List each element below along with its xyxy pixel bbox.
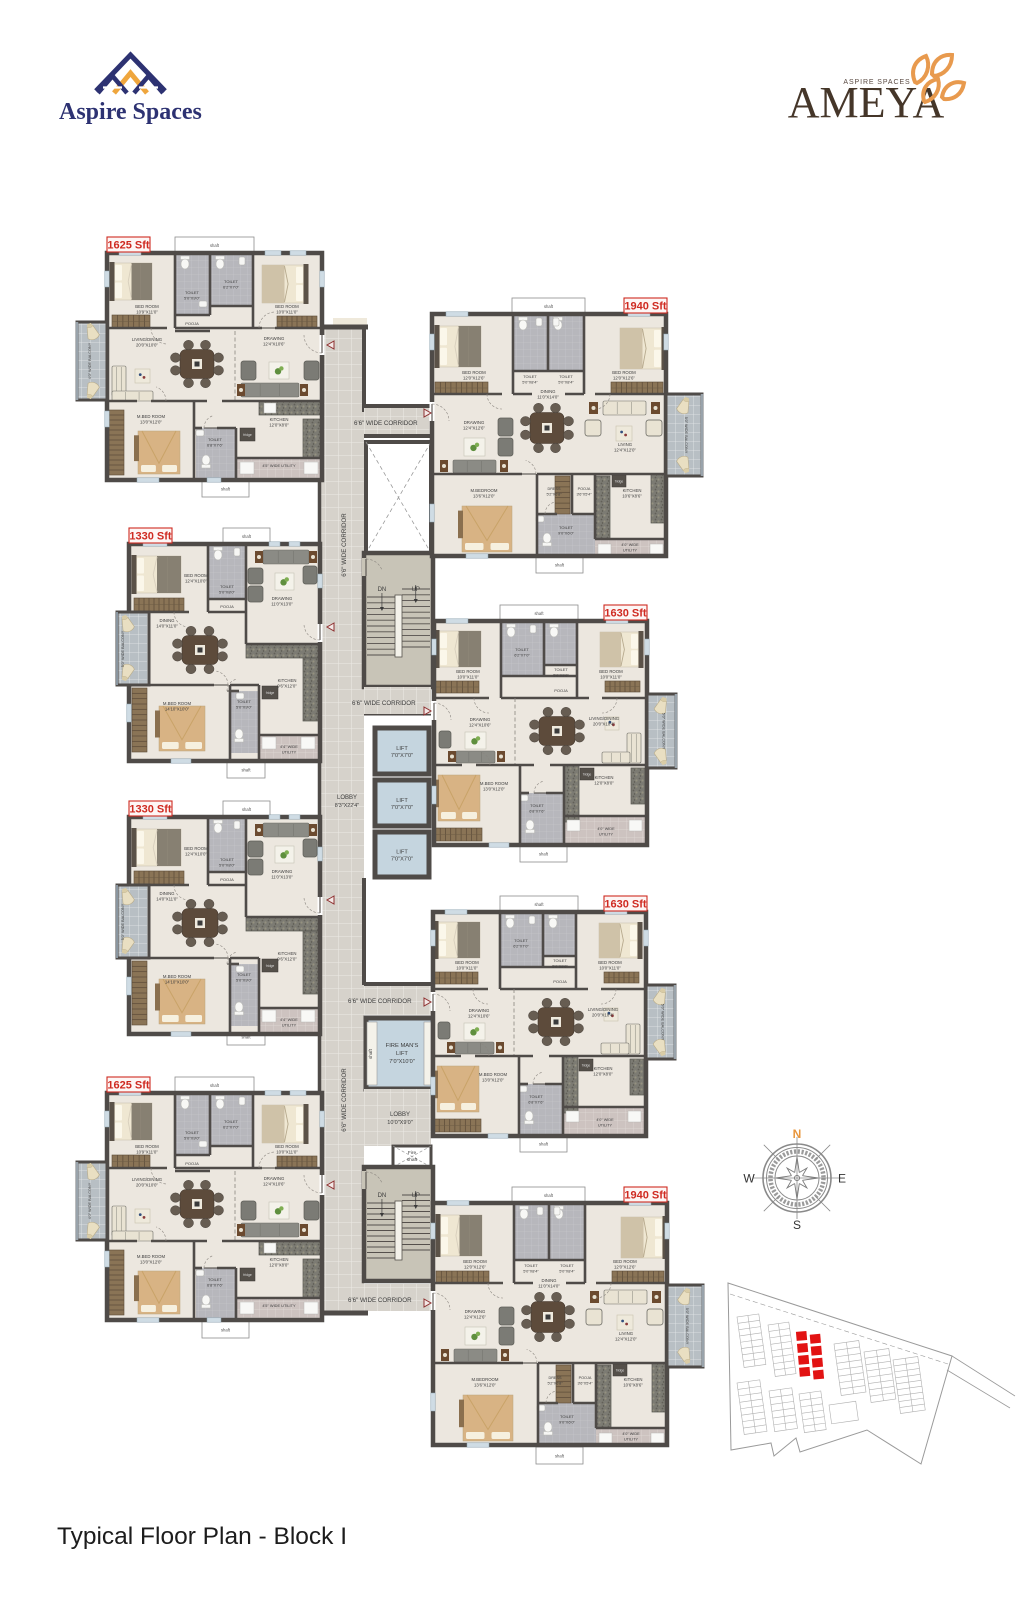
svg-text:BED ROOM: BED ROOM (135, 1144, 159, 1149)
svg-text:1630 Sft: 1630 Sft (604, 608, 647, 620)
svg-text:BED ROOM: BED ROOM (598, 960, 622, 965)
svg-text:LIFT: LIFT (396, 798, 408, 804)
svg-text:E: E (838, 1172, 846, 1186)
svg-text:TOILET: TOILET (220, 584, 234, 589)
svg-text:13'6"X12'0": 13'6"X12'0" (474, 1383, 496, 1388)
svg-text:KITCHEN: KITCHEN (270, 417, 289, 422)
svg-text:6'8"X7'6": 6'8"X7'6" (528, 1100, 544, 1105)
svg-text:1625 Sft: 1625 Sft (107, 240, 150, 252)
svg-text:DRAWING: DRAWING (469, 1008, 490, 1013)
svg-text:AMEYA: AMEYA (788, 78, 945, 127)
svg-text:UTILITY: UTILITY (282, 1023, 297, 1028)
svg-text:BED ROOM: BED ROOM (462, 370, 486, 375)
svg-text:M.BED ROOM: M.BED ROOM (137, 414, 166, 419)
svg-text:5'2"X6'8": 5'2"X6'8" (547, 1382, 563, 1386)
svg-text:1330 Sft: 1330 Sft (129, 531, 172, 543)
svg-text:10'6"X8'6": 10'6"X8'6" (622, 494, 642, 499)
svg-text:12'4"X10'6": 12'4"X10'6" (263, 342, 285, 347)
svg-text:20'0"X10'0": 20'0"X10'0" (136, 343, 158, 348)
svg-text:12'4"X10'6": 12'4"X10'6" (263, 1182, 285, 1187)
svg-text:TOILET: TOILET (224, 1119, 238, 1124)
svg-text:BED ROOM: BED ROOM (456, 669, 480, 674)
svg-text:5'0" WIDE BALCONY: 5'0" WIDE BALCONY (662, 713, 666, 750)
svg-text:5'0"X8'4": 5'0"X8'4" (523, 1269, 539, 1274)
svg-text:KITCHEN: KITCHEN (278, 678, 297, 683)
svg-text:LOBBY: LOBBY (390, 1112, 410, 1118)
svg-text:M.BED ROOM: M.BED ROOM (480, 781, 509, 786)
svg-text:TOILET: TOILET (237, 972, 251, 977)
svg-text:shaft: shaft (539, 851, 549, 856)
svg-text:9'6"X12'0": 9'6"X12'0" (277, 684, 297, 689)
svg-text:UTILITY: UTILITY (624, 1438, 639, 1442)
svg-text:13'0"X12'0": 13'0"X12'0" (482, 1078, 504, 1083)
svg-text:TOILET: TOILET (237, 699, 251, 704)
svg-text:6'6" WIDE CORRIDOR: 6'6" WIDE CORRIDOR (354, 420, 418, 427)
svg-text:LIVING: LIVING (619, 1331, 634, 1336)
svg-text:6'2"X7'0": 6'2"X7'0" (513, 944, 529, 949)
svg-text:1630 Sft: 1630 Sft (604, 899, 647, 911)
svg-text:shaft: shaft (555, 562, 565, 567)
svg-text:5'0"X9'0": 5'0"X9'0" (236, 978, 253, 983)
svg-text:UTILITY: UTILITY (282, 750, 297, 755)
svg-text:5'0"X9'0": 5'0"X9'0" (184, 296, 201, 301)
svg-text:8'3"X22'4": 8'3"X22'4" (335, 803, 360, 809)
svg-text:5'0"X8'0": 5'0"X8'0" (219, 590, 236, 595)
svg-text:LIFT: LIFT (396, 1051, 408, 1057)
svg-text:M.BED ROOM: M.BED ROOM (163, 701, 192, 706)
svg-text:LOBBY: LOBBY (337, 795, 357, 801)
svg-text:14'10"X10'0": 14'10"X10'0" (165, 980, 190, 985)
svg-text:BED ROOM: BED ROOM (275, 304, 299, 309)
svg-text:TOILET: TOILET (530, 803, 544, 808)
svg-text:DRAWING: DRAWING (464, 420, 485, 425)
svg-text:TOILET: TOILET (523, 374, 537, 379)
svg-text:POOJA: POOJA (579, 1376, 592, 1380)
svg-text:10'0"X11'0": 10'0"X11'0" (456, 966, 478, 971)
svg-text:1330 Sft: 1330 Sft (129, 804, 172, 816)
svg-text:shaft: shaft (368, 1048, 373, 1059)
svg-text:fridge: fridge (615, 480, 624, 484)
svg-text:BED ROOM: BED ROOM (599, 669, 623, 674)
svg-text:4'5" WIDE UTILITY: 4'5" WIDE UTILITY (262, 463, 296, 468)
svg-text:BED ROOM: BED ROOM (135, 304, 159, 309)
svg-text:4'0" WIDE: 4'0" WIDE (621, 543, 639, 547)
svg-text:DINING: DINING (159, 891, 175, 896)
svg-text:7'0"X7'0": 7'0"X7'0" (391, 805, 413, 811)
svg-text:shaft: shaft (241, 767, 251, 772)
svg-text:fridge: fridge (243, 1273, 252, 1277)
svg-text:13'6"X12'0": 13'6"X12'0" (473, 494, 495, 499)
svg-text:TOILET: TOILET (560, 1263, 574, 1268)
svg-text:POOJA: POOJA (578, 487, 591, 491)
svg-text:12'4"X10'6": 12'4"X10'6" (469, 723, 491, 728)
svg-text:BED ROOM: BED ROOM (184, 573, 208, 578)
svg-text:BED ROOM: BED ROOM (455, 960, 479, 965)
svg-text:shaft: shaft (407, 1157, 418, 1163)
svg-text:5'0"X9'0": 5'0"X9'0" (553, 673, 569, 678)
svg-text:12'0"X12'6": 12'0"X12'6" (614, 1265, 636, 1270)
svg-text:KITCHEN: KITCHEN (623, 488, 642, 493)
svg-text:POOJA: POOJA (554, 688, 568, 693)
svg-text:14'0"X11'0": 14'0"X11'0" (156, 897, 178, 902)
svg-text:UTILITY: UTILITY (599, 833, 614, 837)
svg-text:TOILET: TOILET (554, 667, 568, 672)
svg-text:shaft: shaft (539, 1141, 549, 1146)
svg-text:TOILET: TOILET (559, 525, 573, 530)
svg-text:4'4" WIDE: 4'4" WIDE (280, 744, 298, 749)
svg-text:DRESS: DRESS (548, 1376, 562, 1380)
svg-text:20'0"X10'4": 20'0"X10'4" (592, 1013, 614, 1018)
svg-text:POOJA: POOJA (553, 979, 567, 984)
svg-text:fridge: fridge (582, 1064, 591, 1068)
svg-text:3'6"X5'4": 3'6"X5'4" (577, 1382, 593, 1386)
svg-text:4'0" WIDE BALCONY: 4'0" WIDE BALCONY (88, 342, 92, 379)
svg-text:5'0"X9'0": 5'0"X9'0" (184, 1136, 201, 1141)
svg-text:5'0" WIDE BALCONY: 5'0" WIDE BALCONY (661, 1004, 665, 1041)
svg-text:12'0"X12'6": 12'0"X12'6" (613, 376, 635, 381)
svg-text:W: W (743, 1172, 755, 1186)
svg-text:DINING: DINING (540, 389, 556, 394)
svg-text:shaft: shaft (221, 1327, 231, 1332)
svg-text:6'6" WIDE CORRIDOR: 6'6" WIDE CORRIDOR (348, 998, 412, 1005)
svg-text:12'4"X12'0": 12'4"X12'0" (614, 448, 636, 453)
svg-text:4'0" WIDE: 4'0" WIDE (622, 1432, 640, 1436)
svg-text:LIFT: LIFT (396, 746, 408, 752)
svg-text:6'2"X7'0": 6'2"X7'0" (223, 285, 240, 290)
svg-text:6'6" WIDE CORRIDOR: 6'6" WIDE CORRIDOR (352, 700, 416, 707)
svg-text:DRAWING: DRAWING (264, 1176, 285, 1181)
svg-text:TOILET: TOILET (515, 647, 529, 652)
svg-text:9'6"X12'0": 9'6"X12'0" (277, 957, 297, 962)
svg-text:10'0"X11'0": 10'0"X11'0" (276, 310, 298, 315)
svg-text:TOILET: TOILET (529, 1094, 543, 1099)
svg-text:LIVING/DINING: LIVING/DINING (588, 1007, 619, 1012)
svg-text:12'4"X12'6": 12'4"X12'6" (463, 426, 485, 431)
svg-text:KITCHEN: KITCHEN (278, 951, 297, 956)
svg-text:LIFT: LIFT (396, 850, 408, 856)
svg-text:KITCHEN: KITCHEN (624, 1377, 643, 1382)
svg-text:LIVING/DINING: LIVING/DINING (589, 716, 620, 721)
svg-text:5'2"X6'8": 5'2"X6'8" (546, 493, 562, 497)
svg-text:shaft: shaft (544, 304, 554, 309)
svg-text:20'0"X10'4": 20'0"X10'4" (593, 722, 615, 727)
svg-text:TOILET: TOILET (224, 279, 238, 284)
svg-text:DRAWING: DRAWING (264, 336, 285, 341)
svg-text:LIVING/DINING: LIVING/DINING (132, 337, 163, 342)
svg-text:M.BED ROOM: M.BED ROOM (137, 1254, 166, 1259)
svg-text:9'0"X6'0": 9'0"X6'0" (558, 531, 575, 536)
svg-text:TOILET: TOILET (524, 1263, 538, 1268)
svg-text:Fire: Fire (408, 1150, 417, 1156)
svg-text:1940 Sft: 1940 Sft (624, 1190, 667, 1202)
svg-text:shaft: shaft (555, 1453, 565, 1458)
svg-text:FIRE MAN'S: FIRE MAN'S (386, 1043, 419, 1049)
svg-text:10'6"X8'6": 10'6"X8'6" (623, 1383, 643, 1388)
svg-text:7'0"X10'0": 7'0"X10'0" (389, 1059, 414, 1065)
svg-text:BED ROOM: BED ROOM (612, 370, 636, 375)
svg-text:shaft: shaft (544, 1193, 554, 1198)
svg-text:6'2"X7'0": 6'2"X7'0" (223, 1125, 240, 1130)
svg-text:TOILET: TOILET (185, 1130, 199, 1135)
svg-text:5'0"X8'4": 5'0"X8'4" (558, 380, 574, 385)
svg-text:10'0"X11'0": 10'0"X11'0" (276, 1150, 298, 1155)
svg-text:fridge: fridge (616, 1369, 625, 1373)
svg-text:5'0"X8'4": 5'0"X8'4" (522, 380, 538, 385)
svg-text:shaft: shaft (534, 902, 544, 907)
svg-text:Typical Floor Plan - Block I: Typical Floor Plan - Block I (57, 1523, 347, 1550)
svg-text:BED ROOM: BED ROOM (275, 1144, 299, 1149)
svg-text:12'4"X12'6": 12'4"X12'6" (464, 1315, 486, 1320)
svg-text:5'0" WIDE BALCONY: 5'0" WIDE BALCONY (121, 903, 125, 940)
svg-text:5'0" WIDE BALCONY: 5'0" WIDE BALCONY (684, 417, 688, 454)
svg-text:7'0"X7'0": 7'0"X7'0" (391, 857, 413, 863)
svg-text:1940 Sft: 1940 Sft (624, 301, 667, 313)
svg-text:shaft: shaft (242, 534, 252, 539)
svg-text:POOJA: POOJA (185, 1161, 199, 1166)
svg-text:N: N (793, 1127, 802, 1141)
svg-text:fridge: fridge (583, 773, 592, 777)
svg-text:10'0"X11'0": 10'0"X11'0" (457, 675, 479, 680)
svg-text:10'0"X9'0": 10'0"X9'0" (387, 1120, 412, 1126)
svg-text:14'10"X10'0": 14'10"X10'0" (165, 707, 190, 712)
svg-text:DRAWING: DRAWING (465, 1309, 486, 1314)
svg-text:13'0"X12'0": 13'0"X12'0" (140, 1260, 162, 1265)
svg-text:12'0"X8'0": 12'0"X8'0" (594, 781, 614, 786)
svg-text:TOILET: TOILET (559, 374, 573, 379)
svg-text:fridge: fridge (243, 433, 252, 437)
svg-text:4'0" WIDE BALCONY: 4'0" WIDE BALCONY (88, 1182, 92, 1219)
svg-text:12'0"X8'0": 12'0"X8'0" (269, 423, 289, 428)
svg-text:11'0"X14'0": 11'0"X14'0" (537, 395, 559, 400)
svg-text:9'0"X6'0": 9'0"X6'0" (559, 1420, 576, 1425)
svg-text:DINING: DINING (159, 618, 175, 623)
svg-text:shaft: shaft (210, 1083, 220, 1088)
svg-text:shaft: shaft (221, 486, 231, 491)
svg-text:KITCHEN: KITCHEN (594, 1066, 613, 1071)
svg-text:10'9"X11'0": 10'9"X11'0" (136, 310, 158, 315)
svg-text:DRAWING: DRAWING (272, 869, 293, 874)
svg-text:13'0"X12'0": 13'0"X12'0" (483, 787, 505, 792)
svg-text:6'2"X7'0": 6'2"X7'0" (514, 653, 530, 658)
svg-text:M.BEDROOM: M.BEDROOM (471, 488, 498, 493)
svg-text:5'0"X8'0": 5'0"X8'0" (219, 863, 236, 868)
svg-text:DINING: DINING (541, 1278, 557, 1283)
svg-text:BED ROOM: BED ROOM (184, 846, 208, 851)
svg-text:Aspire Spaces: Aspire Spaces (59, 99, 202, 125)
svg-text:TOILET: TOILET (208, 1277, 222, 1282)
svg-text:5'0"X9'0": 5'0"X9'0" (236, 705, 253, 710)
svg-text:TOILET: TOILET (208, 437, 222, 442)
svg-text:11'0"X13'0": 11'0"X13'0" (271, 602, 293, 607)
svg-text:6'8"X7'6": 6'8"X7'6" (529, 809, 545, 814)
svg-text:KITCHEN: KITCHEN (270, 1257, 289, 1262)
svg-text:7'0"X7'0": 7'0"X7'0" (391, 753, 413, 759)
svg-text:POOJA: POOJA (185, 321, 199, 326)
svg-text:12'4"X12'0": 12'4"X12'0" (615, 1337, 637, 1342)
svg-text:6'8"X7'6": 6'8"X7'6" (207, 443, 224, 448)
svg-text:12'0"X8'0": 12'0"X8'0" (593, 1072, 613, 1077)
svg-text:10'0"X11'0": 10'0"X11'0" (600, 675, 622, 680)
svg-text:TOILET: TOILET (185, 290, 199, 295)
svg-text:20'0"X10'0": 20'0"X10'0" (136, 1183, 158, 1188)
svg-text:shaft: shaft (242, 807, 252, 812)
svg-text:DRESS: DRESS (547, 487, 561, 491)
svg-text:4'4" WIDE: 4'4" WIDE (280, 1017, 298, 1022)
svg-text:fridge: fridge (266, 691, 275, 695)
svg-text:4'0" WIDE: 4'0" WIDE (597, 827, 615, 831)
svg-text:11'0"X13'0": 11'0"X13'0" (271, 875, 293, 880)
svg-text:fridge: fridge (266, 964, 275, 968)
svg-text:12'0"X8'0": 12'0"X8'0" (269, 1263, 289, 1268)
svg-text:5'0" WIDE BALCONY: 5'0" WIDE BALCONY (685, 1308, 689, 1345)
svg-text:5'0"X9'0": 5'0"X9'0" (552, 964, 568, 969)
svg-text:TOILET: TOILET (220, 857, 234, 862)
svg-text:4'5" WIDE UTILITY: 4'5" WIDE UTILITY (262, 1303, 296, 1308)
svg-text:12'4"X10'0": 12'4"X10'0" (185, 579, 207, 584)
svg-text:POOJA: POOJA (220, 877, 234, 882)
svg-text:14'0"X11'0": 14'0"X11'0" (156, 624, 178, 629)
svg-text:UTILITY: UTILITY (598, 1124, 613, 1128)
svg-text:UTILITY: UTILITY (623, 549, 638, 553)
svg-text:3'6"X5'4": 3'6"X5'4" (576, 493, 592, 497)
svg-text:LIVING: LIVING (618, 442, 633, 447)
svg-text:shaft: shaft (210, 243, 220, 248)
svg-text:BED ROOM: BED ROOM (463, 1259, 487, 1264)
svg-text:BED ROOM: BED ROOM (613, 1259, 637, 1264)
svg-text:POOJA: POOJA (220, 604, 234, 609)
svg-text:11'0"X14'0": 11'0"X14'0" (538, 1284, 560, 1289)
svg-text:DRAWING: DRAWING (470, 717, 491, 722)
svg-text:12'0"X12'6": 12'0"X12'6" (464, 1265, 486, 1270)
svg-text:shaft: shaft (534, 611, 544, 616)
svg-text:KITCHEN: KITCHEN (595, 775, 614, 780)
svg-text:S: S (793, 1218, 801, 1232)
svg-text:M.BED ROOM: M.BED ROOM (163, 974, 192, 979)
svg-text:12'0"X12'6": 12'0"X12'6" (463, 376, 485, 381)
svg-text:LIVING/DINING: LIVING/DINING (132, 1177, 163, 1182)
svg-text:13'0"X12'0": 13'0"X12'0" (140, 420, 162, 425)
svg-text:DRAWING: DRAWING (272, 596, 293, 601)
svg-text:DN: DN (378, 587, 387, 593)
svg-text:6'6" WIDE CORRIDOR: 6'6" WIDE CORRIDOR (348, 1297, 412, 1304)
svg-text:5'0" WIDE BALCONY: 5'0" WIDE BALCONY (121, 630, 125, 667)
svg-text:TOILET: TOILET (560, 1414, 574, 1419)
svg-text:1625 Sft: 1625 Sft (107, 1080, 150, 1092)
svg-text:DN: DN (378, 1193, 387, 1199)
svg-text:12'4"X10'0": 12'4"X10'0" (185, 852, 207, 857)
svg-text:6'6" WIDE CORRIDOR: 6'6" WIDE CORRIDOR (341, 513, 348, 577)
svg-text:4'0" WIDE: 4'0" WIDE (596, 1118, 614, 1122)
svg-text:TOILET: TOILET (553, 958, 567, 963)
svg-text:10'9"X11'0": 10'9"X11'0" (136, 1150, 158, 1155)
svg-text:12'4"X10'6": 12'4"X10'6" (468, 1014, 490, 1019)
svg-text:6'8"X7'6": 6'8"X7'6" (207, 1283, 224, 1288)
svg-text:5'0"X8'4": 5'0"X8'4" (559, 1269, 575, 1274)
svg-text:10'0"X11'0": 10'0"X11'0" (599, 966, 621, 971)
svg-text:M.BEDROOM: M.BEDROOM (472, 1377, 499, 1382)
svg-text:TOILET: TOILET (514, 938, 528, 943)
svg-text:M.BED ROOM: M.BED ROOM (479, 1072, 508, 1077)
svg-text:6'6" WIDE CORRIDOR: 6'6" WIDE CORRIDOR (341, 1068, 348, 1132)
